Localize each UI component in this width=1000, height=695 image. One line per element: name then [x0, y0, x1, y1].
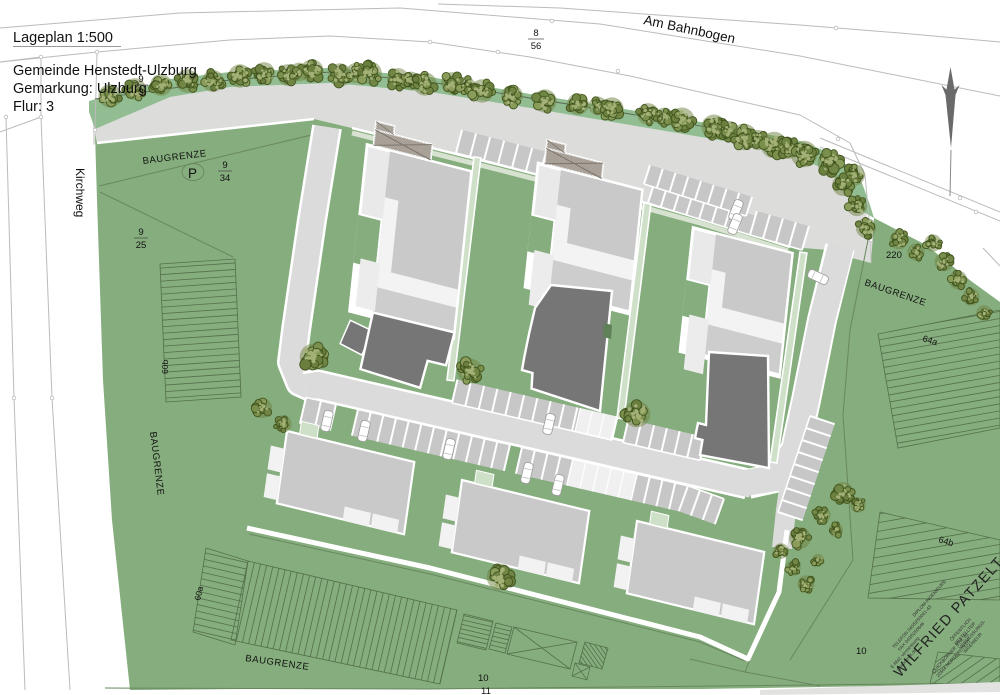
svg-text:Gemarkung: Ulzburg: Gemarkung: Ulzburg: [13, 81, 147, 97]
svg-text:3: 3: [138, 87, 143, 98]
svg-text:8: 8: [533, 28, 538, 39]
svg-text:220: 220: [886, 250, 902, 261]
svg-text:10: 10: [478, 673, 489, 684]
svg-text:P: P: [188, 166, 197, 181]
svg-text:56: 56: [531, 41, 542, 52]
svg-text:11: 11: [481, 686, 491, 695]
svg-text:10: 10: [856, 646, 867, 657]
svg-text:Lageplan 1:500: Lageplan 1:500: [13, 30, 113, 46]
svg-text:60b: 60b: [160, 360, 170, 374]
svg-text:Kirchweg: Kirchweg: [73, 168, 87, 217]
svg-text:Flur: 3: Flur: 3: [13, 99, 54, 115]
svg-text:9: 9: [138, 74, 143, 85]
svg-text:9: 9: [222, 160, 227, 171]
svg-text:34: 34: [220, 173, 231, 184]
svg-text:9: 9: [138, 227, 143, 238]
svg-text:25: 25: [136, 240, 147, 251]
svg-text:Gemeinde Henstedt-Ulzburg: Gemeinde Henstedt-Ulzburg: [13, 63, 197, 79]
